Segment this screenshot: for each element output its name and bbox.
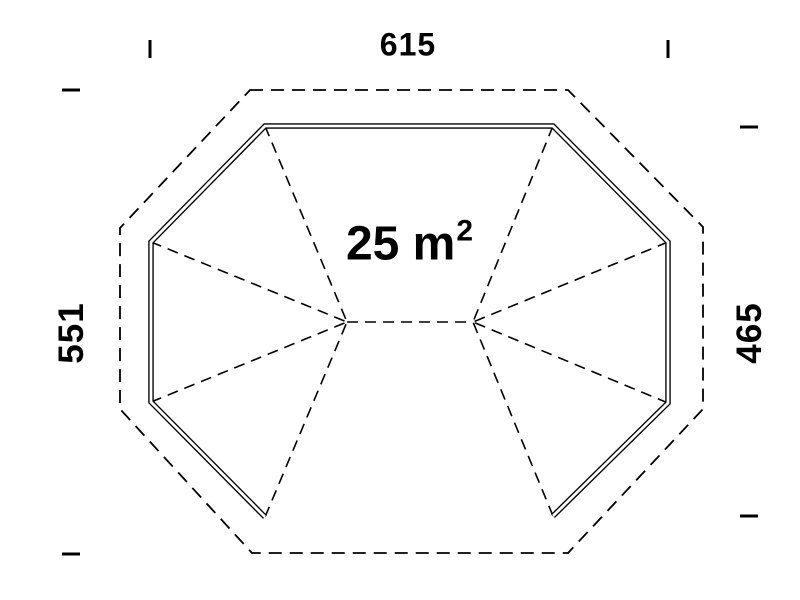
dimension-left-height-label: 551: [52, 302, 92, 363]
roof-hip-line: [151, 242, 347, 322]
roof-hip-line: [473, 242, 668, 322]
dimension-width-label: 615: [380, 27, 436, 64]
area-value: 25 m: [346, 218, 455, 271]
roof-hip-line: [265, 126, 347, 322]
gazebo-floor-plan-drawing: [0, 0, 800, 600]
floor-plan-canvas: 615 551 465 25 m2: [0, 0, 800, 600]
dimension-right-height-label: 465: [730, 302, 770, 363]
roof-hip-line: [151, 322, 347, 402]
area-superscript: 2: [456, 215, 473, 248]
roof-hip-line: [473, 322, 553, 516]
roof-hip-line: [473, 126, 553, 322]
area-label: 25 m2: [346, 217, 472, 272]
